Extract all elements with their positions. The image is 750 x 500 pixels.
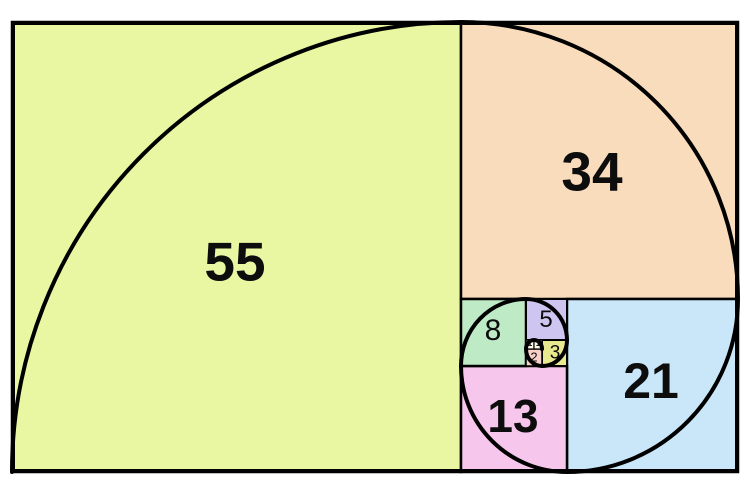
- label-square-5: 5: [539, 308, 552, 332]
- label-square-2: 2: [530, 351, 537, 364]
- fibonacci-spiral-figure: 55 34 21 13 8 5 3 2 1 1: [0, 0, 750, 500]
- label-square-55: 55: [204, 235, 265, 290]
- label-square-34: 34: [561, 145, 622, 200]
- label-square-3: 3: [550, 344, 561, 363]
- label-square-1-right: 1: [536, 340, 540, 348]
- diagram-canvas: [0, 0, 750, 500]
- label-square-1-left: 1: [528, 340, 532, 348]
- label-square-13: 13: [487, 393, 538, 439]
- label-square-21: 21: [623, 356, 679, 406]
- label-square-8: 8: [485, 316, 502, 346]
